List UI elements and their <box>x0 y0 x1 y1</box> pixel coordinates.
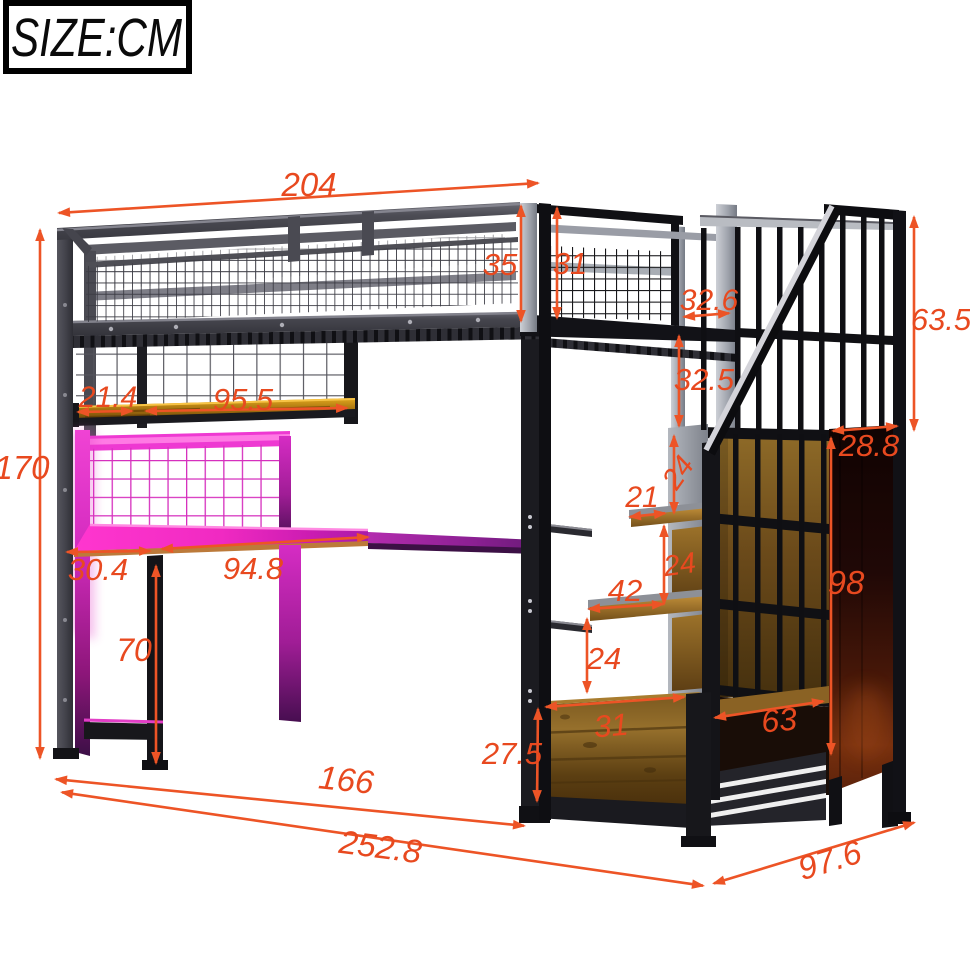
svg-text:166: 166 <box>317 758 376 801</box>
svg-text:170: 170 <box>0 449 50 486</box>
svg-text:95.5: 95.5 <box>213 382 274 417</box>
svg-text:30.4: 30.4 <box>68 552 128 587</box>
svg-text:21: 21 <box>624 481 658 514</box>
svg-text:SIZE:CM: SIZE:CM <box>11 8 182 68</box>
svg-text:27.5: 27.5 <box>481 736 543 771</box>
svg-text:31: 31 <box>553 246 587 281</box>
svg-text:35: 35 <box>483 247 518 282</box>
svg-text:31: 31 <box>592 707 629 745</box>
svg-text:98: 98 <box>828 564 865 601</box>
svg-text:94.8: 94.8 <box>223 551 284 586</box>
svg-text:204: 204 <box>280 166 336 203</box>
svg-text:28.8: 28.8 <box>838 428 900 463</box>
svg-text:42: 42 <box>608 573 642 608</box>
svg-text:70: 70 <box>116 632 152 668</box>
svg-text:32.6: 32.6 <box>680 284 739 317</box>
svg-text:24: 24 <box>586 641 621 676</box>
svg-text:32.5: 32.5 <box>674 362 735 397</box>
svg-text:63.5: 63.5 <box>911 302 970 337</box>
svg-text:24: 24 <box>661 547 698 583</box>
svg-text:63: 63 <box>760 701 799 740</box>
svg-text:21.4: 21.4 <box>78 381 137 414</box>
